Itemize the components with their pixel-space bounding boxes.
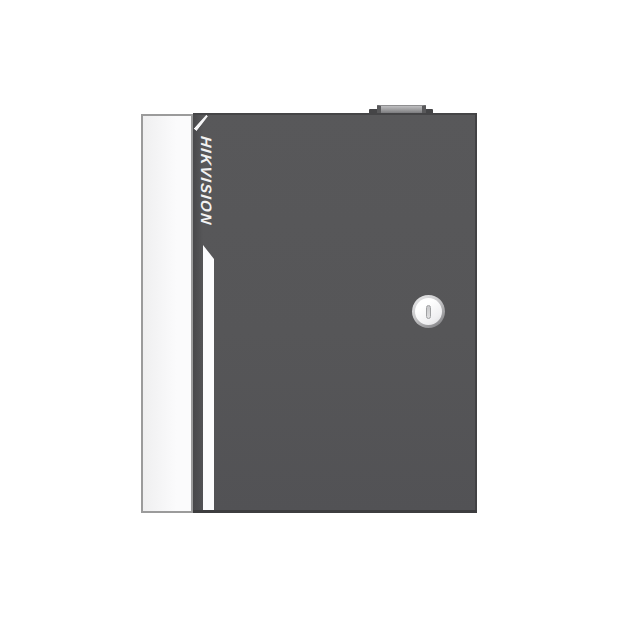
lock-face xyxy=(415,298,442,325)
cam-lock xyxy=(412,295,445,328)
door-right-edge xyxy=(475,113,477,513)
door-bottom-edge xyxy=(193,510,477,513)
door-top-edge xyxy=(193,113,477,115)
enclosure-door: HIKVISION xyxy=(193,113,477,513)
enclosure-side-panel xyxy=(141,114,193,513)
decorative-stripe xyxy=(203,245,214,513)
brand-logo: HIKVISION xyxy=(199,135,214,237)
product-photo: HIKVISION xyxy=(0,0,620,620)
keyhole-slot-icon xyxy=(426,305,431,319)
